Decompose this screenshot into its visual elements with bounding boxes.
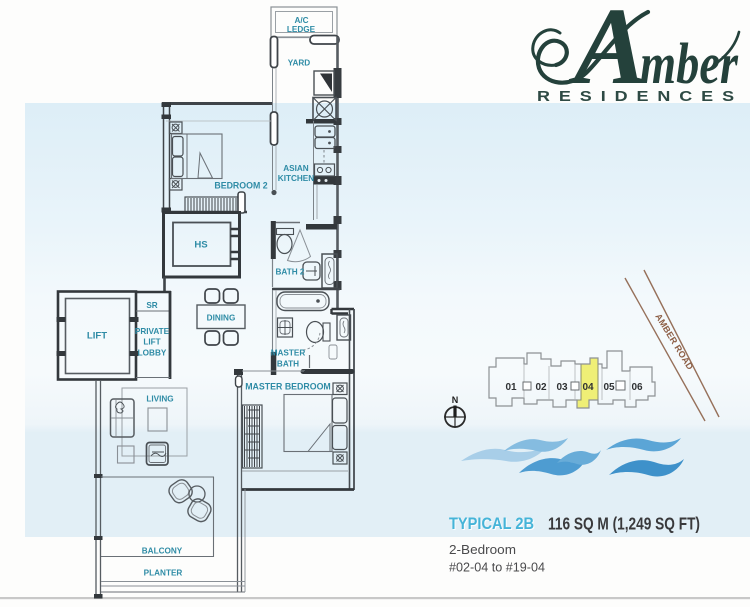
svg-text:PLANTER: PLANTER	[144, 569, 183, 578]
svg-text:BALCONY: BALCONY	[142, 547, 183, 556]
svg-text:04: 04	[582, 382, 594, 393]
svg-text:BEDROOM 2: BEDROOM 2	[214, 181, 267, 191]
svg-text:TYPICAL 2B: TYPICAL 2B	[449, 514, 534, 533]
svg-text:LIFT: LIFT	[143, 338, 160, 347]
svg-text:MASTER: MASTER	[271, 349, 306, 358]
svg-text:SR: SR	[146, 301, 157, 310]
svg-text:LOBBY: LOBBY	[138, 349, 167, 358]
svg-text:LIFT: LIFT	[87, 331, 107, 342]
svg-text:YARD: YARD	[288, 59, 311, 68]
svg-text:116 SQ M (1,249 SQ FT): 116 SQ M (1,249 SQ FT)	[548, 514, 700, 534]
svg-text:BATH: BATH	[277, 360, 299, 369]
svg-text:KITCHEN: KITCHEN	[278, 174, 314, 183]
svg-text:06: 06	[631, 382, 643, 393]
svg-text:BATH 2: BATH 2	[276, 268, 305, 277]
svg-text:LEDGE: LEDGE	[287, 25, 316, 34]
svg-text:DINING: DINING	[207, 314, 236, 323]
svg-text:ASIAN: ASIAN	[283, 164, 309, 173]
svg-text:2-Bedroom: 2-Bedroom	[449, 543, 516, 557]
svg-text:LIVING: LIVING	[146, 395, 173, 404]
svg-text:A/C: A/C	[294, 16, 308, 25]
svg-text:01: 01	[505, 382, 517, 393]
svg-text:mber: mber	[640, 31, 738, 96]
svg-text:05: 05	[603, 382, 615, 393]
svg-text:03: 03	[556, 382, 568, 393]
svg-text:N: N	[452, 395, 459, 405]
svg-text:02: 02	[535, 382, 547, 393]
svg-text:PRIVATE: PRIVATE	[135, 327, 170, 336]
svg-text:HS: HS	[194, 240, 208, 251]
svg-text:MASTER BEDROOM: MASTER BEDROOM	[245, 382, 331, 392]
svg-text:#02-04 to #19-04: #02-04 to #19-04	[449, 561, 545, 575]
svg-text:RESIDENCES: RESIDENCES	[537, 89, 743, 105]
